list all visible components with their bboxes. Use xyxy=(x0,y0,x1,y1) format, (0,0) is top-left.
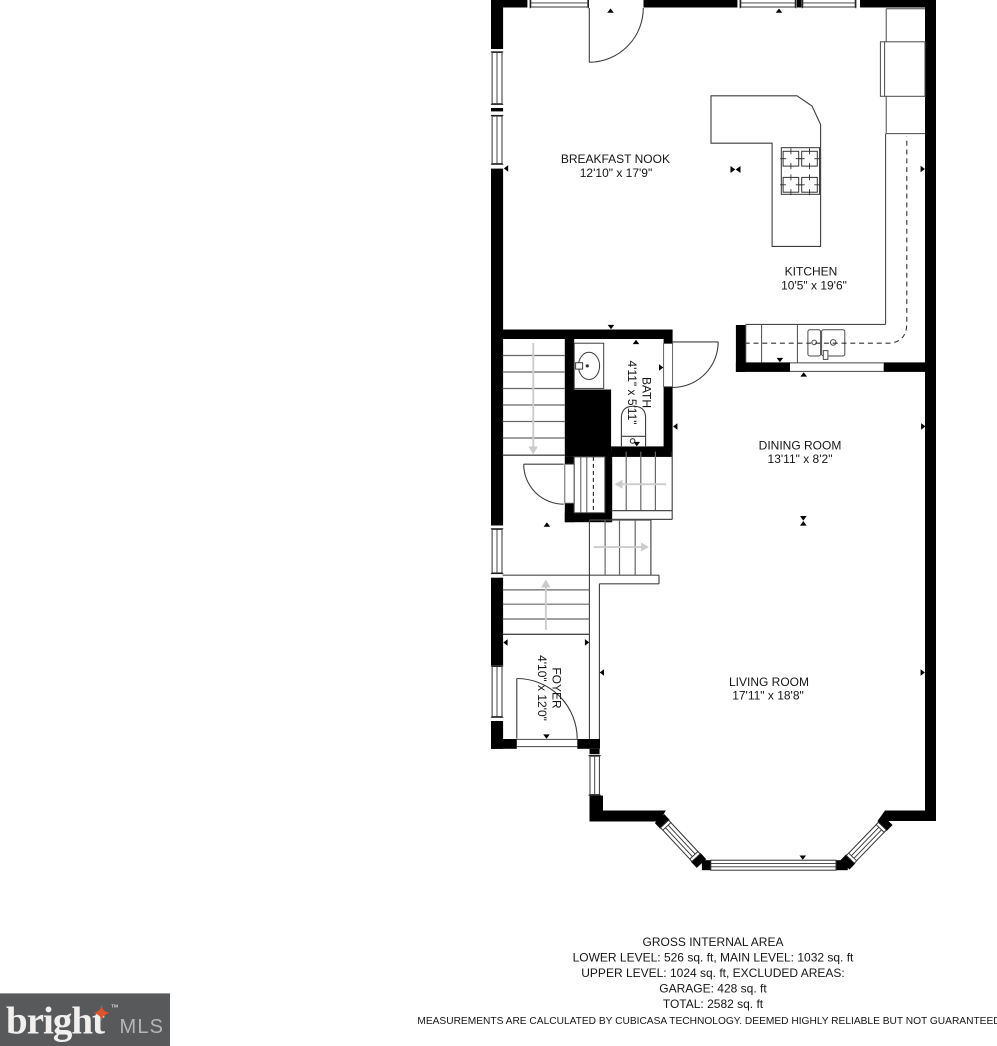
svg-text:KITCHEN: KITCHEN xyxy=(785,265,838,279)
svg-text:BREAKFAST NOOK: BREAKFAST NOOK xyxy=(561,152,670,166)
svg-text:GARAGE: 428 sq. ft: GARAGE: 428 sq. ft xyxy=(659,982,767,996)
svg-text:UPPER LEVEL: 1024 sq. ft, EXCL: UPPER LEVEL: 1024 sq. ft, EXCLUDED AREAS… xyxy=(581,966,844,980)
svg-text:BATH: BATH xyxy=(640,377,654,408)
svg-text:TOTAL: 2582 sq. ft: TOTAL: 2582 sq. ft xyxy=(663,997,764,1011)
svg-text:4'11" x 5'11": 4'11" x 5'11" xyxy=(625,360,639,424)
svg-text:FOYER: FOYER xyxy=(550,667,564,709)
svg-text:LIVING ROOM: LIVING ROOM xyxy=(729,675,809,689)
svg-text:10'5" x 19'6": 10'5" x 19'6" xyxy=(781,279,847,293)
svg-text:DINING ROOM: DINING ROOM xyxy=(759,438,842,452)
svg-text:™: ™ xyxy=(111,1003,119,1012)
svg-text:13'11" x 8'2": 13'11" x 8'2" xyxy=(768,452,833,466)
svg-text:MLS: MLS xyxy=(120,1016,165,1038)
svg-text:17'11" x 18'8": 17'11" x 18'8" xyxy=(732,689,804,703)
svg-text:MEASUREMENTS ARE CALCULATED BY: MEASUREMENTS ARE CALCULATED BY CUBICASA … xyxy=(417,1016,997,1027)
svg-text:4'10" x 12'0": 4'10" x 12'0" xyxy=(535,655,549,721)
svg-text:GROSS INTERNAL AREA: GROSS INTERNAL AREA xyxy=(643,935,784,949)
svg-text:LOWER LEVEL: 526 sq. ft, MAIN: LOWER LEVEL: 526 sq. ft, MAIN LEVEL: 103… xyxy=(573,951,854,965)
svg-text:12'10" x 17'9": 12'10" x 17'9" xyxy=(580,166,653,180)
svg-text:bright: bright xyxy=(6,1000,105,1043)
